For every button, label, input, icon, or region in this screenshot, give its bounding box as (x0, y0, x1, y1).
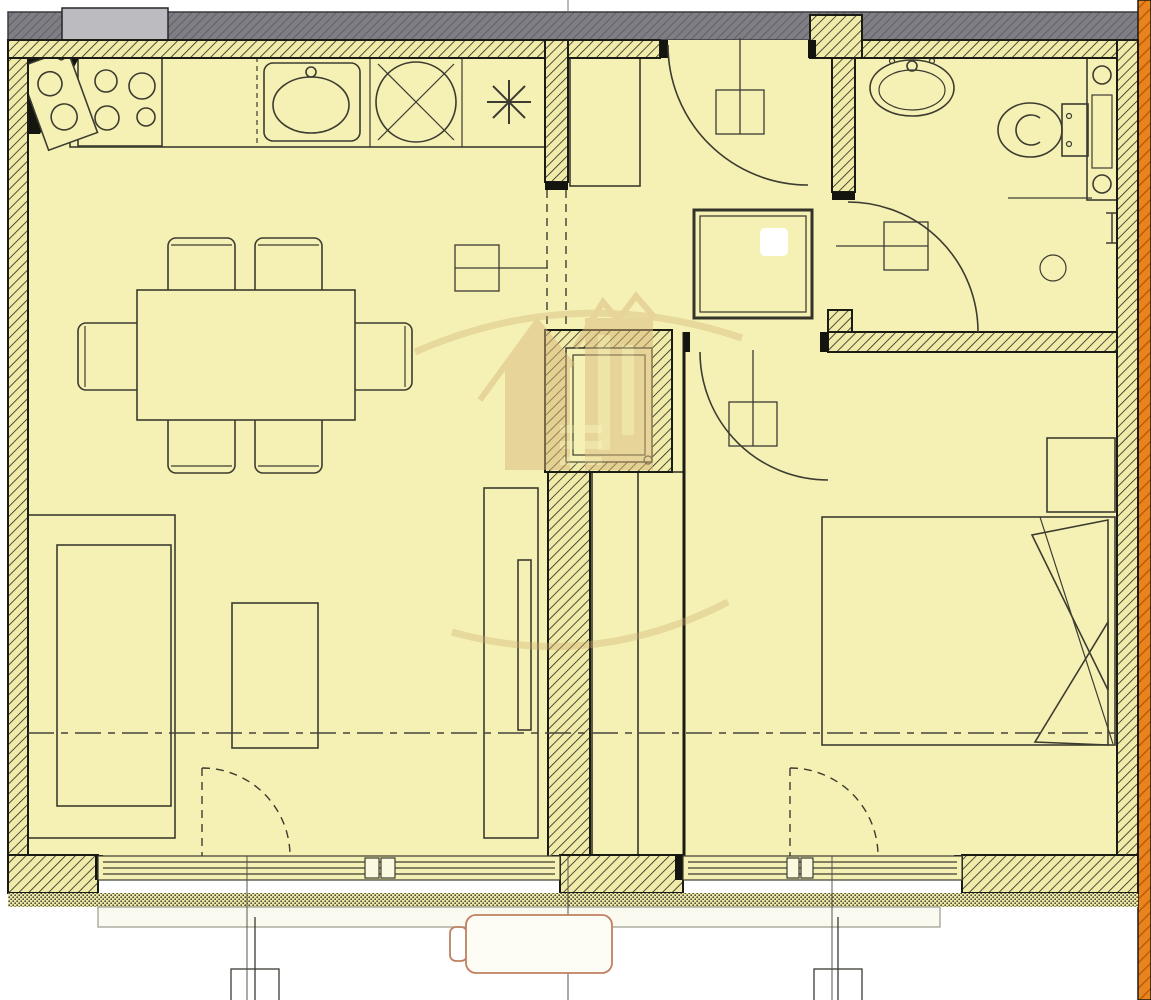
dining-table (137, 290, 355, 420)
redacted-patch (760, 228, 788, 256)
floor-plan (0, 0, 1151, 1000)
staircase (592, 472, 684, 858)
duct-box (62, 8, 168, 40)
bedroom-window (683, 856, 962, 880)
living-room-window (98, 856, 560, 880)
facade-label-left (231, 917, 279, 1000)
adjacent-wall-band (1138, 0, 1151, 1000)
ac-unit-box (450, 915, 612, 973)
facade-label-right (814, 917, 862, 1000)
insulation-band (8, 893, 1138, 907)
top-structure-band (8, 12, 1151, 40)
floor-plan-page (0, 0, 1151, 1000)
apartment-info-box (694, 210, 812, 318)
snowflake-icon (487, 80, 531, 124)
